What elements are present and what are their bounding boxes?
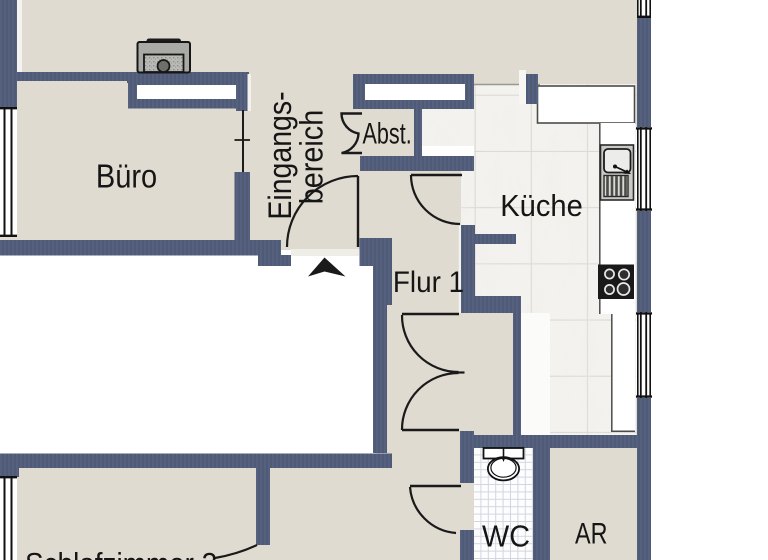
svg-text:Büro: Büro (96, 158, 157, 195)
svg-text:Küche: Küche (500, 189, 583, 223)
svg-text:Flur 1: Flur 1 (393, 266, 464, 299)
svg-text:Schlafzimmer 3: Schlafzimmer 3 (25, 547, 217, 560)
svg-text:AR: AR (575, 517, 607, 550)
svg-text:Abst.: Abst. (363, 116, 412, 150)
svg-text:bereich: bereich (294, 110, 330, 204)
svg-text:WC: WC (482, 520, 530, 554)
